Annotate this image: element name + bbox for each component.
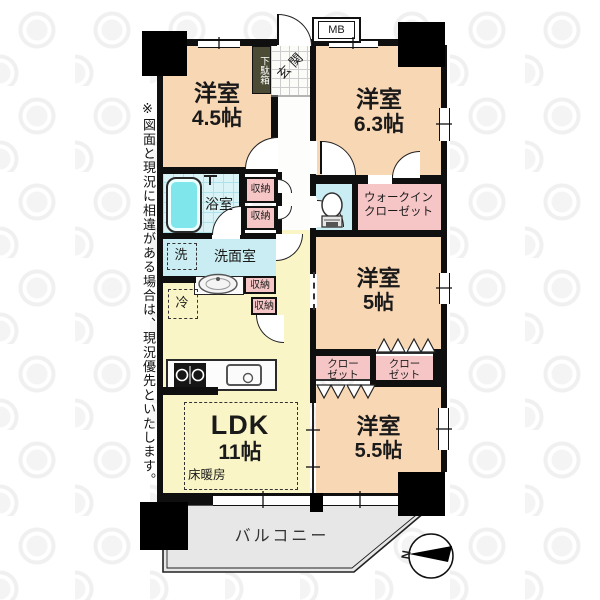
toilet-door-gap (310, 198, 317, 228)
bathroom-label: 浴室 (198, 196, 240, 212)
storage-d-label: 収納 (251, 301, 277, 313)
washer-label: 洗 (167, 248, 195, 263)
bathtub (166, 177, 202, 233)
wic-label-line1: ウォークイン (356, 192, 441, 205)
room-west3-size: 5帖 (316, 292, 441, 315)
wall-toilet-bottom (316, 230, 441, 237)
storage-c-label: 収納 (244, 280, 276, 292)
wall-ldk-west4-thin (312, 403, 314, 498)
pillar-bottom-left (140, 502, 188, 550)
front-door-leaf (277, 14, 279, 45)
compass-north-label: N (399, 547, 415, 563)
room-west3-name: 洋室 (316, 266, 441, 291)
washroom-label: 洗面室 (198, 248, 272, 264)
storage-a-label: 収納 (245, 184, 276, 196)
closet-right-line2: ゼット (376, 369, 433, 381)
pillar-top-right (398, 22, 445, 67)
balcony-shape (0, 0, 600, 600)
wall-hall-right-1 (310, 43, 316, 141)
floorplan-page: { "disclaimer": "※図面と現況に相違がある場合は、現況優先といた… (0, 0, 600, 600)
sink-icon (226, 364, 262, 386)
room-west4-name: 洋室 (316, 414, 441, 439)
closet-right-top-line (376, 352, 433, 354)
wall-hall-right-2 (310, 173, 316, 196)
fridge-label: 冷 (168, 296, 196, 311)
closet-left-line2: ゼット (316, 369, 370, 381)
ldk-size: 11帖 (185, 441, 295, 465)
room-west2-size: 6.3帖 (325, 113, 433, 137)
wall-wash-bottom (157, 276, 196, 283)
west2-door-gap (310, 141, 317, 174)
west2-door-leaf (320, 141, 322, 174)
window-balcony-left (213, 495, 310, 506)
balcony-center-post (310, 493, 323, 512)
floor-heating-label: 床暖房 (188, 468, 240, 482)
storage-b-label: 収納 (245, 211, 276, 223)
room-west4-size: 5.5帖 (316, 440, 441, 463)
window-west1-top (198, 40, 240, 48)
wall-kitchen-stub (157, 387, 218, 395)
pillar-top-left (142, 31, 187, 76)
room-west1-size: 4.5帖 (167, 107, 267, 131)
balcony-label: バルコニー (222, 528, 342, 546)
window-balcony-right (323, 495, 398, 506)
wall-wash-bath-a (157, 233, 212, 239)
room-west1-name: 洋室 (167, 80, 267, 106)
wall-west3-bottom (316, 349, 372, 356)
wic-label-line2: クローゼット (356, 206, 441, 219)
disclaimer-text: ※図面と現況に相違がある場合は、現況優先といたします。 (136, 102, 158, 502)
room-west2-name: 洋室 (325, 86, 433, 112)
window-west2-right (439, 108, 450, 141)
pillar-bottom-right (398, 472, 445, 516)
mb-box-inner: MB (318, 21, 355, 39)
wall-west2-bottom-a (316, 175, 368, 184)
stove-icon (174, 363, 206, 387)
vanity-counter (194, 276, 244, 295)
wic-door-gap (368, 175, 392, 184)
ldk-name: LDK (185, 410, 295, 441)
wall-wash-bath-b (240, 233, 278, 239)
west3-door-leaf (313, 272, 315, 310)
